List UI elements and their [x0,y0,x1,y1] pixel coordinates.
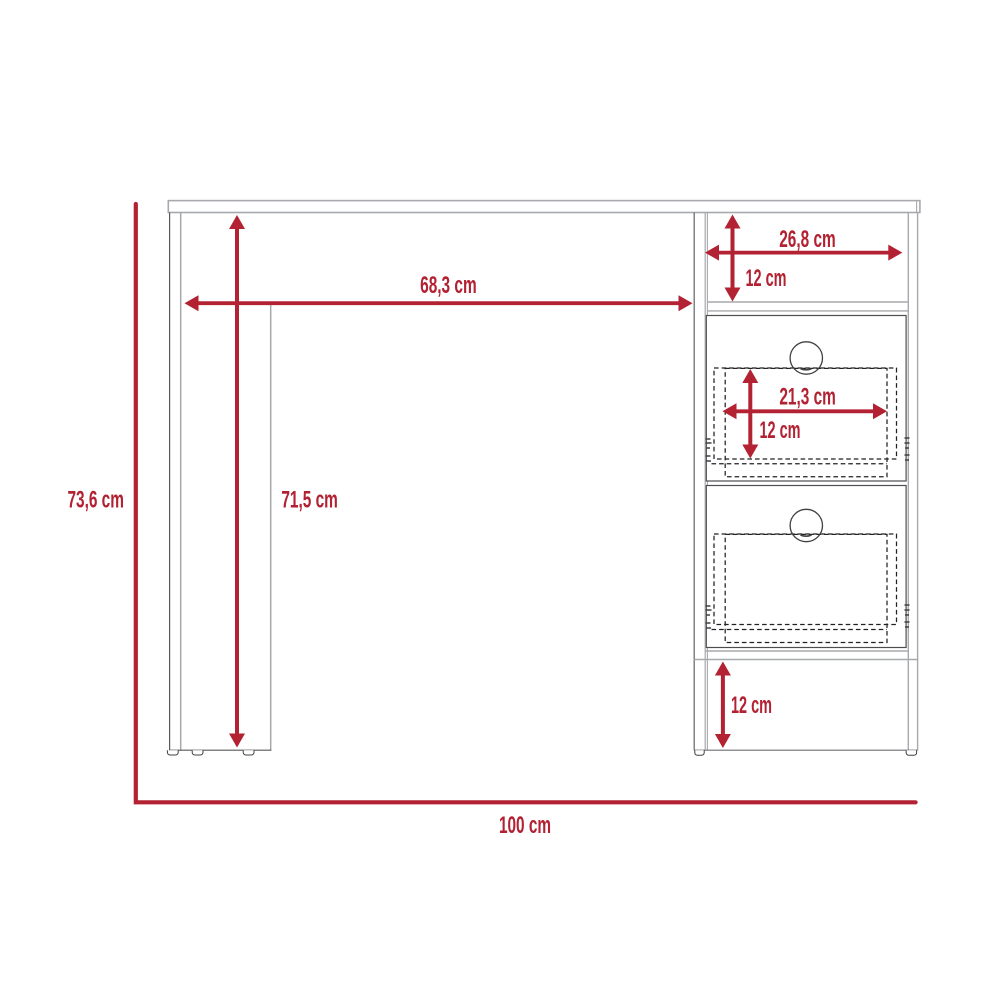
svg-text:73,6 cm: 73,6 cm [67,487,124,514]
svg-text:21,3 cm: 21,3 cm [779,383,836,410]
svg-text:12 cm: 12 cm [731,692,772,719]
svg-text:68,3 cm: 68,3 cm [420,272,477,299]
svg-text:100 cm: 100 cm [499,812,551,839]
svg-text:12 cm: 12 cm [760,417,801,444]
svg-text:12 cm: 12 cm [746,265,787,292]
svg-text:26,8 cm: 26,8 cm [779,226,836,253]
svg-text:71,5 cm: 71,5 cm [281,487,338,514]
